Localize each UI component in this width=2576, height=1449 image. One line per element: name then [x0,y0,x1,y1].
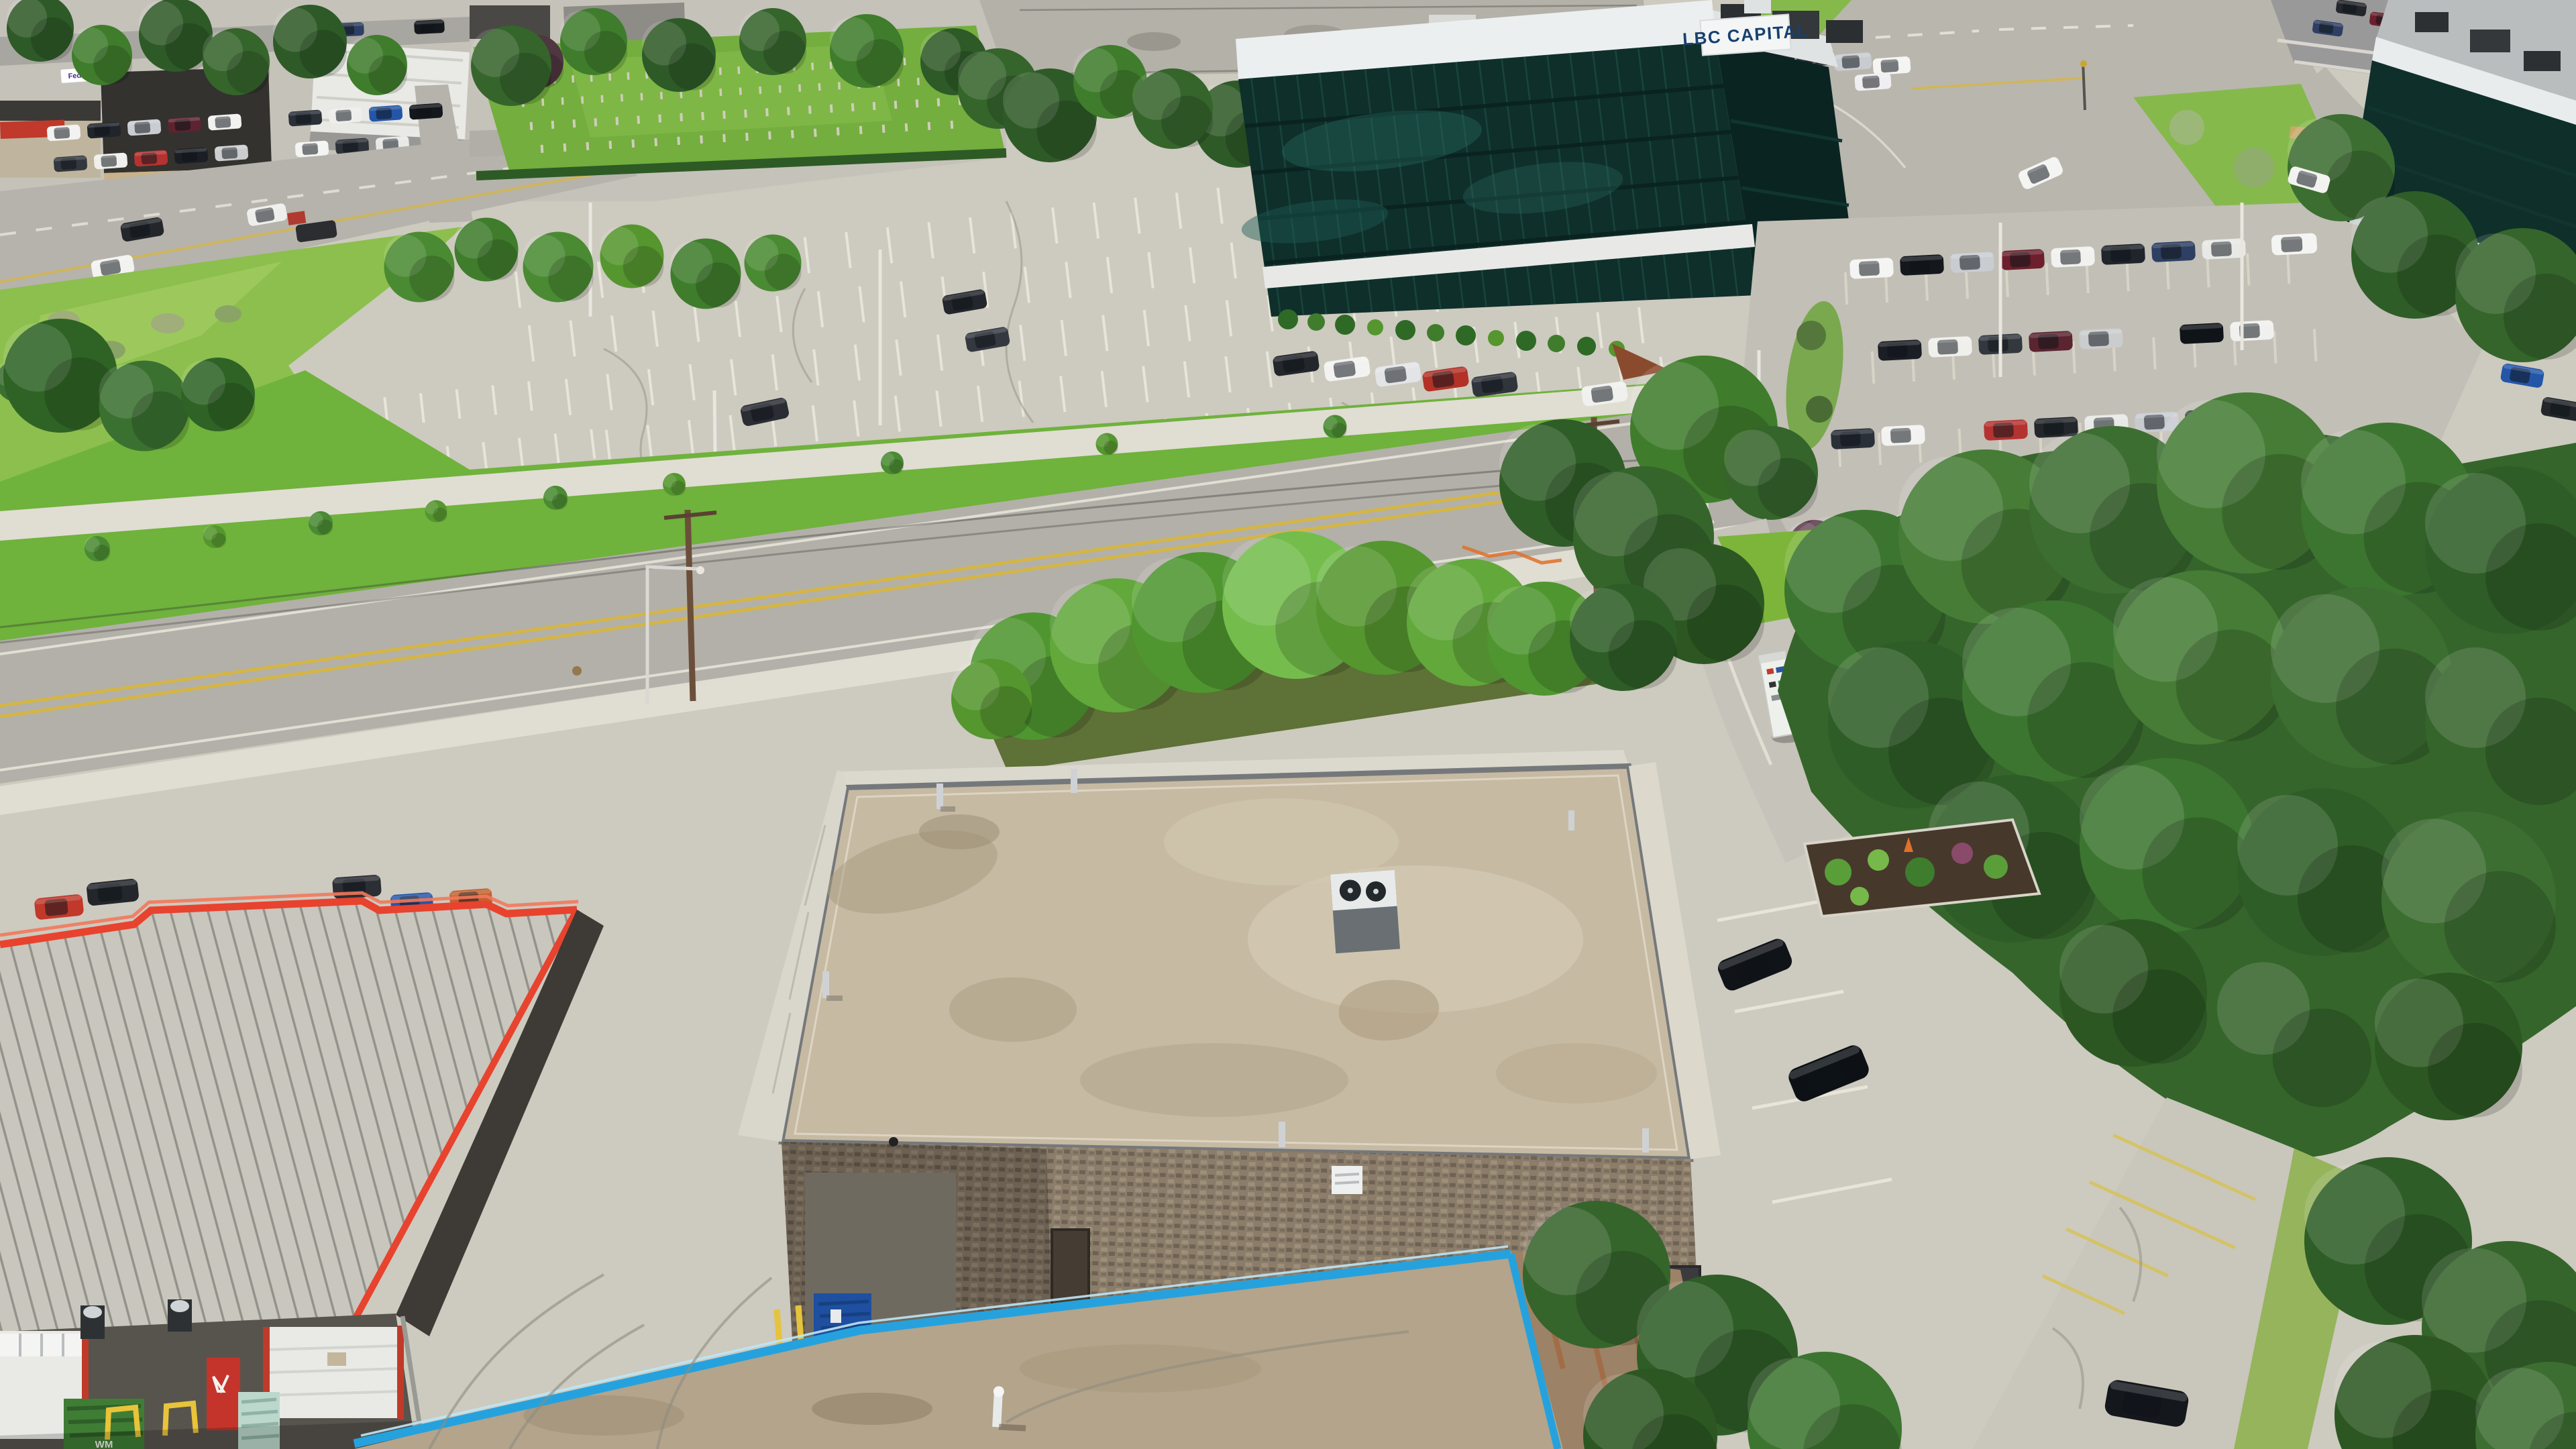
security-camera [889,1137,898,1146]
garage-door-2 [263,1326,404,1419]
manhole [572,666,582,676]
wall-ac-unit [1332,1166,1362,1194]
scene-canvas: FedEx [0,0,2576,1449]
small-red-sign [287,211,306,225]
red-entry-door [207,1358,240,1430]
